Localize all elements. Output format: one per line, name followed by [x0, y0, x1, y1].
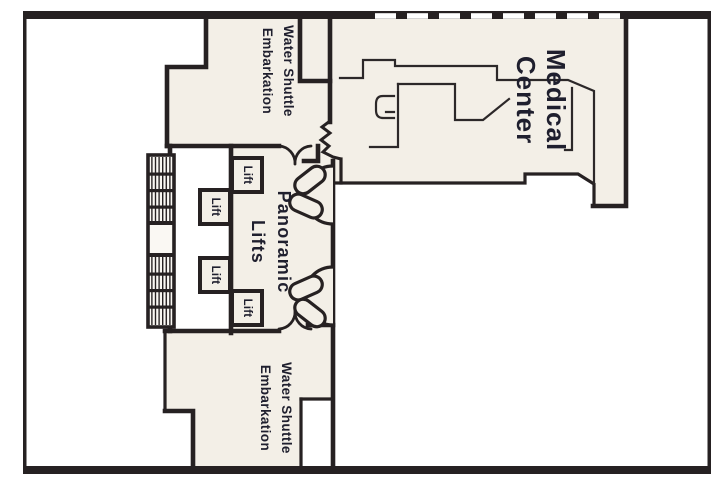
deck-edge-dash — [599, 13, 620, 19]
deck-edge-dash — [407, 13, 428, 19]
medical-center-label: Medical Center — [511, 49, 571, 151]
deck-edge-dash — [535, 13, 556, 19]
deck-edge-dash — [439, 13, 460, 19]
hull-frame-right — [708, 11, 712, 474]
hull-frame-bottom — [23, 466, 711, 474]
panoramic-lifts-label-line2: Lifts — [248, 220, 268, 264]
water-shuttle-top-label-line1: Water Shuttle — [281, 25, 296, 117]
shaft-floor — [300, 19, 330, 81]
medical-center-label-line2: Center — [511, 56, 541, 144]
water-shuttle-bottom-label-line1: Water Shuttle — [279, 362, 294, 454]
deck-edge-dash — [471, 13, 492, 19]
deck-edge-dash — [375, 13, 396, 19]
lift-label-4: Lift — [241, 299, 253, 318]
lift-label-4-text: Lift — [241, 299, 253, 318]
deck-edge-dash — [567, 13, 588, 19]
stairs-icon — [148, 155, 174, 327]
panoramic-lifts-label-line1: Panoramic — [274, 191, 294, 294]
deck-edge-dash — [503, 13, 524, 19]
water-shuttle-bottom-label-line2: Embarkation — [258, 365, 273, 451]
water-shuttle-top-label-line2: Embarkation — [260, 28, 275, 114]
lift-label-1: Lift — [241, 166, 253, 185]
lift-label-1-text: Lift — [241, 166, 253, 185]
lift-label-2: Lift — [209, 198, 221, 217]
deck-plan-canvas: Medical Center Water Shuttle Embarkation… — [0, 0, 725, 483]
lift-label-3: Lift — [209, 266, 221, 285]
hull-frame-left — [23, 11, 27, 474]
medical-center-label-line1: Medical — [541, 49, 571, 151]
lift-label-2-text: Lift — [209, 198, 221, 217]
deck-plan-svg: Medical Center Water Shuttle Embarkation… — [0, 0, 725, 483]
lift-label-3-text: Lift — [209, 266, 221, 285]
